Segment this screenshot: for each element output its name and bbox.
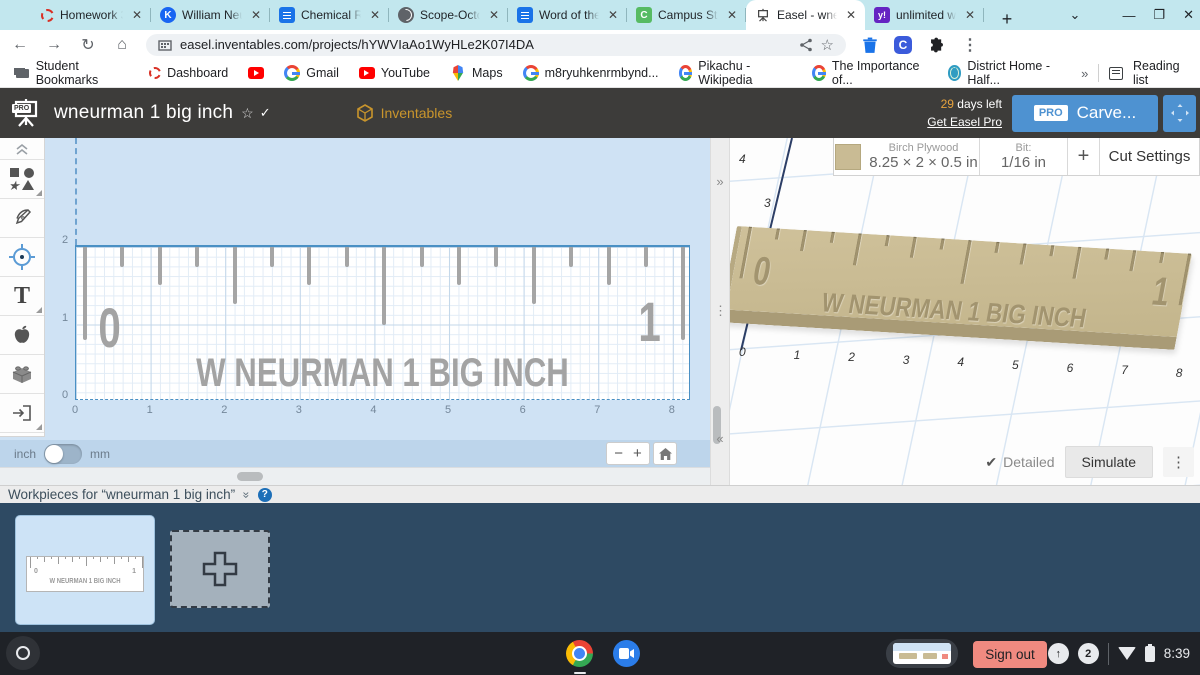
tick bbox=[79, 557, 80, 559]
google-g-icon bbox=[284, 65, 300, 81]
tick bbox=[569, 247, 573, 267]
horizontal-scrollbar[interactable] bbox=[0, 467, 710, 485]
back-icon[interactable]: ← bbox=[10, 36, 30, 54]
preview-x-label: 0 bbox=[739, 345, 746, 359]
canvas-x-label: 2 bbox=[221, 404, 227, 416]
workpiece-thumbnail-ruler: 0 1 W NEURMAN 1 BIG INCH bbox=[26, 556, 144, 592]
left-toolbar: ★T bbox=[0, 138, 45, 437]
site-business-icon bbox=[158, 38, 172, 52]
bookmark-label: YouTube bbox=[381, 66, 430, 80]
add-bit-button[interactable]: + bbox=[1068, 138, 1100, 175]
tick bbox=[607, 247, 611, 285]
zoom-controls: − + bbox=[606, 442, 677, 465]
shapes-tool[interactable]: ★ bbox=[0, 160, 44, 199]
chrome-app-icon[interactable] bbox=[566, 640, 593, 667]
panel-divider[interactable]: » ⋮ « bbox=[710, 138, 730, 485]
tick bbox=[457, 247, 461, 285]
easel-header: PRO wneurman 1 big inch ☆ ✓ Inventables … bbox=[0, 88, 1200, 138]
add-workpiece-button[interactable] bbox=[170, 530, 270, 608]
tab-close-icon[interactable]: ✕ bbox=[129, 7, 145, 23]
bookmarks-overflow-chevron[interactable]: » bbox=[1081, 66, 1088, 81]
tab-campus-stud[interactable]: CCampus Stud✕ bbox=[627, 0, 746, 30]
divider-drag-dots[interactable]: ⋮ bbox=[711, 303, 729, 319]
carve-pro-badge: PRO bbox=[1034, 105, 1068, 121]
update-available-icon[interactable]: ↑ bbox=[1048, 643, 1069, 664]
tab-chemical-rea[interactable]: Chemical Rea✕ bbox=[270, 0, 389, 30]
tick bbox=[382, 247, 386, 325]
preview-x-label: 4 bbox=[957, 355, 964, 369]
bookmark-label: Gmail bbox=[306, 66, 339, 80]
bookmark-label: m8ryuhkenrmbynd... bbox=[545, 66, 659, 80]
youtube-icon bbox=[359, 67, 375, 79]
tab-title: Word of the d bbox=[539, 8, 599, 22]
chevrons-up-icon bbox=[15, 143, 29, 155]
units-toggle[interactable] bbox=[44, 444, 82, 464]
inventables-hexagon-icon bbox=[356, 104, 374, 122]
url-text: easel.inventables.com/projects/hYWVIaAo1… bbox=[180, 37, 534, 52]
tick bbox=[135, 557, 136, 559]
tab-word-of-the-d[interactable]: Word of the d✕ bbox=[508, 0, 627, 30]
tick bbox=[774, 228, 779, 239]
tab-title: Homework 3/7 bbox=[60, 8, 123, 22]
tab-search-chevron-icon[interactable]: ⌄ bbox=[1070, 7, 1081, 23]
tick bbox=[65, 557, 66, 559]
canvas-y-label: 2 bbox=[62, 234, 68, 246]
bookmarks-divider bbox=[1098, 64, 1099, 82]
trial-days: 29 bbox=[941, 97, 954, 111]
preview-x-label: 8 bbox=[1176, 366, 1183, 380]
tools-container: ★T bbox=[0, 160, 44, 433]
bookmark-gmail[interactable]: Gmail bbox=[276, 62, 347, 84]
tick bbox=[420, 247, 424, 267]
tab-close-icon[interactable]: ✕ bbox=[248, 7, 264, 23]
ruler-numeral-left[interactable]: 0 bbox=[98, 295, 120, 360]
new-tab-button[interactable]: + bbox=[994, 9, 1020, 30]
folder-icon bbox=[16, 65, 30, 81]
trial-days-label: days left bbox=[954, 97, 1002, 111]
material-swatch bbox=[835, 144, 861, 170]
chrome-active-indicator bbox=[574, 672, 586, 674]
canvas-x-label: 7 bbox=[594, 404, 600, 416]
canvas-y-label: 0 bbox=[62, 389, 68, 401]
workpieces-header: Workpieces for “wneurman 1 big inch” » ? bbox=[0, 485, 1200, 503]
drill-tool[interactable] bbox=[0, 238, 44, 277]
tick bbox=[532, 247, 536, 304]
workpiece-thumbnail-selected[interactable]: 0 1 W NEURMAN 1 BIG INCH bbox=[15, 515, 155, 625]
zoom-out-button[interactable]: − bbox=[614, 445, 623, 462]
sign-out-button[interactable]: Sign out bbox=[973, 641, 1047, 668]
bookmark-dashboard[interactable]: Dashboard bbox=[141, 63, 236, 83]
video-camera-icon bbox=[619, 648, 634, 659]
origin-dashed-line bbox=[75, 138, 77, 245]
google-g-icon bbox=[523, 65, 539, 81]
thumbnail-numeral-right: 1 bbox=[132, 568, 136, 575]
browser-navbar: ← → ↻ ⌂ easel.inventables.com/projects/h… bbox=[0, 30, 1200, 59]
tick bbox=[644, 247, 648, 267]
workpieces-panel: 0 1 W NEURMAN 1 BIG INCH bbox=[0, 503, 1200, 632]
google-g-icon bbox=[679, 65, 693, 81]
window-preview-mini bbox=[893, 643, 951, 664]
tick bbox=[307, 247, 311, 285]
tab-close-icon[interactable]: ✕ bbox=[486, 7, 502, 23]
text-tool-flyout-corner bbox=[36, 307, 42, 313]
restore-button[interactable]: ❐ bbox=[1153, 7, 1165, 23]
tab-close-icon[interactable]: ✕ bbox=[724, 7, 740, 23]
zoom-home-icon bbox=[659, 448, 672, 460]
wifi-icon bbox=[1118, 647, 1136, 660]
status-tray[interactable]: ↑ 2 8:39 bbox=[1048, 639, 1190, 668]
inventables-label: Inventables bbox=[381, 105, 453, 121]
tab-william-neurm[interactable]: KWilliam Neurm✕ bbox=[151, 0, 270, 30]
tick bbox=[1129, 250, 1136, 271]
design-library-tool[interactable] bbox=[0, 316, 44, 355]
screen: Homework 3/7✕KWilliam Neurm✕Chemical Rea… bbox=[0, 0, 1200, 675]
preview-3d-panel[interactable]: 0 1 W NEURMAN 1 BIG INCH 43 012345678 Bi… bbox=[730, 138, 1200, 485]
canvas-x-label: 0 bbox=[72, 404, 78, 416]
preview-x-label: 6 bbox=[1067, 361, 1074, 375]
material-bar: Birch Plywood 8.25 × 2 × 0.5 in Bit: 1/1… bbox=[833, 138, 1200, 176]
tick bbox=[121, 557, 122, 559]
dashed-red-favicon-icon bbox=[41, 9, 54, 22]
jog-arrows-icon bbox=[1170, 103, 1190, 123]
trial-info: 29 days left Get Easel Pro bbox=[927, 95, 1002, 131]
text-tool[interactable]: T bbox=[0, 277, 44, 316]
canvas-x-label: 3 bbox=[296, 404, 302, 416]
tick bbox=[83, 247, 87, 340]
tick bbox=[51, 557, 52, 559]
tick bbox=[158, 247, 162, 285]
tick bbox=[739, 227, 752, 279]
zoom-pill: − + bbox=[606, 442, 650, 465]
simulate-kebab-menu[interactable]: ⋮ bbox=[1163, 447, 1194, 477]
tick bbox=[494, 247, 498, 267]
carve-button[interactable]: PRO Carve... bbox=[1012, 95, 1158, 132]
browser-menu-icon[interactable]: ⋮ bbox=[960, 35, 980, 55]
thumbnail-engraving-text: W NEURMAN 1 BIG INCH bbox=[36, 578, 135, 585]
import-tool-flyout-corner bbox=[36, 424, 42, 430]
design-canvas[interactable]: 0 1 W NEURMAN 1 BIG INCH 210 012345678 i… bbox=[0, 138, 710, 467]
canvas-x-label: 6 bbox=[520, 404, 526, 416]
add-workpiece-plus-icon bbox=[198, 547, 242, 591]
tick bbox=[994, 242, 999, 253]
thumbnail-numeral-left: 0 bbox=[34, 568, 38, 575]
bookmark-label: Pikachu - Wikipedia bbox=[698, 59, 792, 87]
omnibox[interactable]: easel.inventables.com/projects/hYWVIaAo1… bbox=[146, 34, 846, 56]
cut-settings-button[interactable]: Cut Settings bbox=[1100, 138, 1199, 175]
canvas-y-label: 1 bbox=[62, 312, 68, 324]
bookmark-student-bookmarks[interactable]: Student Bookmarks bbox=[8, 56, 137, 90]
tick bbox=[853, 233, 862, 265]
bookmark-star-icon[interactable]: ☆ bbox=[821, 36, 834, 54]
tick bbox=[37, 557, 38, 559]
tab-homework-3-7[interactable]: Homework 3/7✕ bbox=[32, 0, 151, 30]
detailed-label: Detailed bbox=[1003, 454, 1054, 470]
chromeos-shelf: Sign out ↑ 2 8:39 bbox=[0, 632, 1200, 675]
tick bbox=[884, 235, 889, 246]
bookmark-label: Student Bookmarks bbox=[36, 59, 129, 87]
units-inch-label: inch bbox=[14, 447, 36, 461]
workpieces-title: Workpieces for “wneurman 1 big inch” bbox=[8, 487, 235, 502]
bookmark-district-home-half-[interactable]: District Home - Half... bbox=[940, 56, 1077, 90]
gdoc-favicon-icon bbox=[279, 7, 295, 23]
reading-list-label[interactable]: Reading list bbox=[1133, 59, 1192, 87]
tick bbox=[1159, 252, 1164, 263]
collapse-toolbar-button[interactable] bbox=[0, 138, 44, 160]
detailed-toggle[interactable]: ✔ Detailed bbox=[985, 454, 1054, 471]
tick bbox=[72, 557, 73, 562]
tick bbox=[93, 557, 94, 559]
share-icon[interactable] bbox=[799, 38, 813, 52]
import-tool[interactable] bbox=[0, 394, 44, 433]
preview-y-label: 3 bbox=[764, 196, 771, 210]
bookmark-the-importance-of-[interactable]: The Importance of... bbox=[804, 56, 935, 90]
minimize-button[interactable]: — bbox=[1122, 8, 1135, 23]
home-icon[interactable]: ⌂ bbox=[112, 36, 132, 54]
forward-icon[interactable]: → bbox=[44, 36, 64, 54]
gdoc-favicon-icon bbox=[517, 7, 533, 23]
inventables-brand[interactable]: Inventables bbox=[356, 104, 453, 122]
bookmark-m8ryuhkenrmbynd-[interactable]: m8ryuhkenrmbynd... bbox=[515, 62, 667, 84]
detailed-check-icon: ✔ bbox=[985, 454, 997, 471]
bookmark-label: Dashboard bbox=[167, 66, 228, 80]
tick bbox=[1104, 249, 1109, 260]
tab-title: Easel - wneurm bbox=[777, 8, 837, 22]
canvas-x-label: 4 bbox=[370, 404, 376, 416]
bookmark-maps[interactable]: Maps bbox=[442, 62, 511, 84]
extensions-puzzle-icon[interactable] bbox=[926, 36, 946, 54]
tick bbox=[233, 247, 237, 304]
simulate-row: ✔ Detailed Simulate ⋮ bbox=[985, 446, 1194, 478]
tab-close-icon[interactable]: ✕ bbox=[367, 7, 383, 23]
bookmark-pikachu-wikipedia[interactable]: Pikachu - Wikipedia bbox=[671, 56, 801, 90]
tab-title: unlimited wor bbox=[896, 8, 956, 22]
simulate-button[interactable]: Simulate bbox=[1065, 446, 1153, 478]
tab-scope-octobe[interactable]: Scope-Octobe✕ bbox=[389, 0, 508, 30]
bit-label: Bit: bbox=[1001, 142, 1046, 154]
window-preview-thumbnail[interactable] bbox=[886, 639, 958, 668]
carve-label: Carve... bbox=[1077, 103, 1137, 123]
tick bbox=[939, 238, 944, 249]
youtube-icon bbox=[248, 67, 264, 79]
maps-pin-icon bbox=[450, 65, 466, 81]
easel-logo-pro-badge: PRO bbox=[12, 104, 31, 113]
launcher-button[interactable] bbox=[6, 636, 40, 670]
preview-y-label: 4 bbox=[739, 152, 746, 166]
tab-title: William Neurm bbox=[182, 8, 242, 22]
tab-close-icon[interactable]: ✕ bbox=[843, 7, 859, 23]
google-g-icon bbox=[812, 65, 826, 81]
tick bbox=[114, 557, 115, 564]
tick bbox=[86, 557, 87, 566]
tick bbox=[30, 557, 31, 568]
tick bbox=[195, 247, 199, 267]
globe-dark-favicon-icon bbox=[398, 7, 414, 23]
units-bar: inch mm bbox=[0, 440, 710, 467]
shapes-tool-flyout-corner bbox=[36, 190, 42, 196]
canvas-x-label: 1 bbox=[147, 404, 153, 416]
board-numeral-right: 1 bbox=[1148, 270, 1173, 316]
ydict-favicon-icon: y! bbox=[874, 7, 890, 23]
tray-divider bbox=[1108, 643, 1109, 665]
battery-icon bbox=[1145, 646, 1155, 662]
canvas-x-label: 8 bbox=[669, 404, 675, 416]
launcher-circle-icon bbox=[16, 646, 30, 660]
tick bbox=[800, 230, 807, 251]
tab-close-icon[interactable]: ✕ bbox=[605, 7, 621, 23]
tick bbox=[128, 557, 129, 562]
dashed-red-icon bbox=[149, 67, 161, 79]
bookmark-youtube[interactable]: YouTube bbox=[351, 63, 438, 83]
preview-x-label: 5 bbox=[1012, 358, 1019, 372]
tick bbox=[58, 557, 59, 564]
tab-unlimited-wor[interactable]: y!unlimited wor✕ bbox=[865, 0, 984, 30]
khan-favicon-icon: K bbox=[160, 7, 176, 23]
preview-x-label: 1 bbox=[794, 348, 801, 362]
tick bbox=[960, 240, 971, 284]
workpiece-design[interactable]: 0 1 W NEURMAN 1 BIG INCH bbox=[75, 245, 690, 400]
units-toggle-knob bbox=[45, 445, 63, 463]
tick bbox=[107, 557, 108, 559]
browser-tab-strip: Homework 3/7✕KWilliam Neurm✕Chemical Rea… bbox=[0, 0, 1200, 30]
c-extension-icon[interactable]: C bbox=[894, 36, 912, 54]
tick bbox=[1072, 247, 1081, 279]
get-easel-pro-link[interactable]: Get Easel Pro bbox=[927, 115, 1002, 129]
material-dimensions: 8.25 × 2 × 0.5 in bbox=[869, 154, 977, 171]
tab-close-icon[interactable]: ✕ bbox=[962, 7, 978, 23]
tick bbox=[120, 247, 124, 267]
tick bbox=[345, 247, 349, 267]
easel-favicon-icon bbox=[755, 7, 771, 23]
tick bbox=[1020, 244, 1027, 265]
material-section[interactable]: Birch Plywood 8.25 × 2 × 0.5 in bbox=[834, 138, 980, 175]
canvas-x-label: 5 bbox=[445, 404, 451, 416]
bit-value: 1/16 in bbox=[1001, 154, 1046, 171]
bookmarks-bar: Student BookmarksDashboardGmailYouTubeMa… bbox=[0, 59, 1200, 88]
tabs-container: Homework 3/7✕KWilliam Neurm✕Chemical Rea… bbox=[32, 0, 984, 30]
campus-favicon-icon: C bbox=[636, 7, 652, 23]
jog-machine-button[interactable] bbox=[1163, 95, 1196, 132]
project-title[interactable]: wneurman 1 big inch bbox=[54, 102, 233, 124]
units-mm-label: mm bbox=[90, 447, 110, 461]
bit-section[interactable]: Bit: 1/16 in bbox=[980, 138, 1068, 175]
notification-count-badge[interactable]: 2 bbox=[1078, 643, 1099, 664]
zoom-home-button[interactable] bbox=[653, 442, 677, 465]
tick bbox=[829, 232, 834, 243]
bookmark-youtube[interactable] bbox=[240, 64, 272, 82]
zoom-in-button[interactable]: + bbox=[633, 445, 642, 462]
saved-check-icon: ✓ bbox=[260, 105, 271, 121]
preview-x-label: 2 bbox=[848, 350, 855, 364]
preview-x-label: 3 bbox=[903, 353, 910, 367]
tick bbox=[270, 247, 274, 267]
reading-list-icon bbox=[1109, 67, 1123, 80]
tab-title: Scope-Octobe bbox=[420, 8, 480, 22]
tab-title: Chemical Rea bbox=[301, 8, 361, 22]
bookmarks-right: » Reading list bbox=[1081, 59, 1192, 87]
easel-icon bbox=[10, 97, 42, 129]
tab-easel-wneurm[interactable]: Easel - wneurm✕ bbox=[746, 0, 865, 30]
expand-panel-chevron[interactable]: » bbox=[711, 174, 729, 189]
horizontal-scrollbar-thumb[interactable] bbox=[237, 472, 263, 481]
reload-icon[interactable]: ↻ bbox=[78, 35, 98, 55]
preview-x-label: 7 bbox=[1121, 363, 1128, 377]
ruler-numeral-right[interactable]: 1 bbox=[638, 289, 660, 354]
collapse-panel-chevron[interactable]: « bbox=[711, 431, 729, 446]
bookmarks-container: Student BookmarksDashboardGmailYouTubeMa… bbox=[8, 56, 1077, 90]
tick bbox=[44, 557, 45, 562]
bookmark-label: District Home - Half... bbox=[967, 59, 1069, 87]
ruler-engraving-text[interactable]: W NEURMAN 1 BIG INCH bbox=[143, 351, 621, 396]
material-name: Birch Plywood bbox=[869, 142, 977, 154]
close-window-button[interactable]: ✕ bbox=[1183, 7, 1194, 23]
workpieces-collapse-chevrons[interactable]: » bbox=[239, 491, 253, 498]
tick bbox=[100, 557, 101, 562]
globe-icon bbox=[948, 65, 962, 81]
favorite-star-icon[interactable]: ☆ bbox=[241, 105, 254, 122]
three-d-tool[interactable] bbox=[0, 355, 44, 394]
tick bbox=[681, 247, 685, 340]
clock: 8:39 bbox=[1164, 646, 1190, 661]
tick bbox=[1049, 245, 1054, 256]
pen-tool[interactable] bbox=[0, 199, 44, 238]
workpieces-help-icon[interactable]: ? bbox=[258, 488, 272, 502]
window-controls: ⌄ — ❐ ✕ bbox=[1070, 0, 1194, 30]
bookmark-label: Maps bbox=[472, 66, 503, 80]
tick bbox=[142, 557, 143, 568]
easel-logo[interactable]: PRO bbox=[8, 95, 44, 131]
bookmark-label: The Importance of... bbox=[832, 59, 928, 87]
camera-app-icon[interactable] bbox=[613, 640, 640, 667]
tick bbox=[910, 237, 917, 258]
trash-extension-icon[interactable] bbox=[860, 36, 880, 54]
tab-title: Campus Stud bbox=[658, 8, 718, 22]
